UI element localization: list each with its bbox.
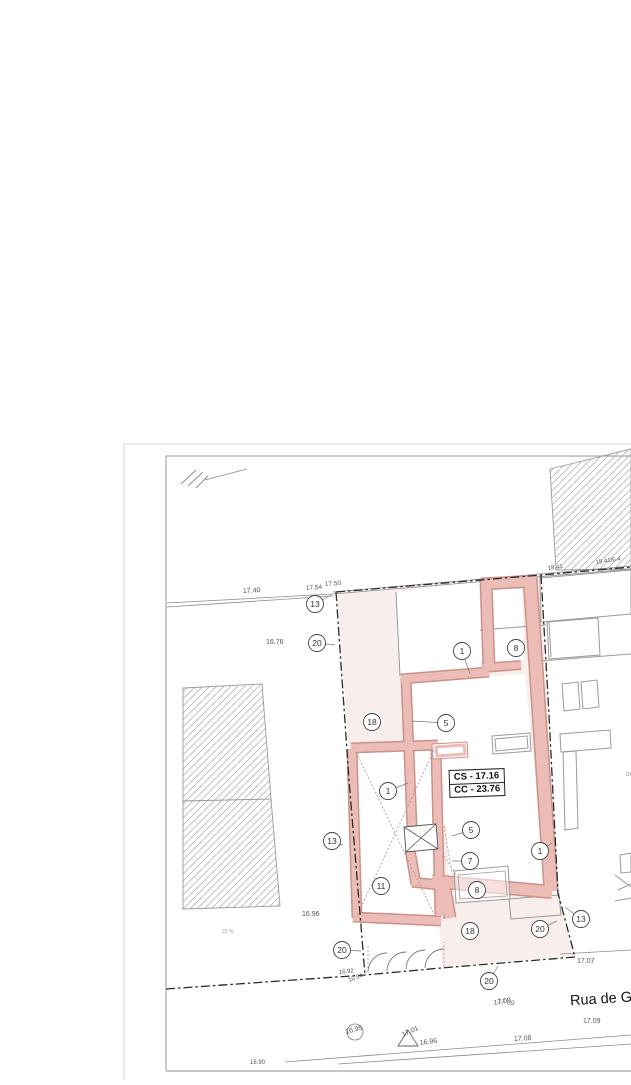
elevation-label: 17.08: [514, 1035, 532, 1043]
circled-marker-label: 1: [386, 786, 391, 796]
corner-sketch-mark: [181, 469, 247, 488]
elevation-label: 16.76: [266, 639, 284, 646]
elevation-label: 17.50: [325, 580, 342, 588]
crossed-box-element: [404, 824, 438, 852]
process-note-line2: PROC : 4/92: [586, 778, 631, 784]
circled-marker-label: 8: [514, 643, 519, 653]
circled-marker-label: 20: [484, 976, 494, 986]
circled-marker-label: 20: [337, 945, 347, 955]
circled-marker-label: 18: [367, 717, 377, 727]
road-lines: [285, 1035, 631, 1064]
wall-shelf-element: [432, 742, 468, 759]
elevation-label: 16.95: [345, 1025, 364, 1036]
elevation-label: 17.07: [577, 958, 595, 965]
circled-marker-label: 11: [377, 881, 386, 891]
circled-marker-label: 13: [327, 836, 337, 846]
circled-marker-label: 18: [465, 926, 475, 936]
site-plan-sheet: 17.4017.5417.5016.7618.4119.41/6.423 %16…: [0, 0, 631, 1080]
circled-marker-label: 1: [460, 646, 465, 656]
area-info-box: CS - 17.16 CC - 23.76: [449, 768, 506, 798]
process-note: DO MESMO REQ PROC : 4/92: [586, 772, 631, 784]
elevation-label: 16.96: [302, 911, 320, 918]
elevation-label: 16.92: [339, 968, 355, 976]
circled-marker-label: 7: [468, 856, 473, 866]
circled-marker-label: 1: [538, 846, 543, 856]
circled-marker-label: 13: [310, 599, 320, 609]
elevation-label: 18.41: [547, 564, 563, 572]
elevation-label: 17.54: [306, 584, 323, 592]
circled-marker-label: 5: [444, 718, 449, 728]
elevation-label: 16.90: [250, 1060, 266, 1066]
elevation-label: 16.96: [419, 1038, 437, 1047]
site-plan-drawing: 17.4017.5417.5016.7618.4119.41/6.423 %16…: [0, 0, 631, 1080]
cc-value: CC - 23.76: [450, 782, 504, 797]
circled-marker-label: 20: [535, 924, 545, 934]
elevation-label: 17.09: [583, 1018, 601, 1025]
hatched-building-left: [182, 684, 280, 909]
circled-marker-label: 20: [312, 638, 322, 648]
circled-marker-label: 5: [469, 825, 474, 835]
circled-marker-label: 13: [576, 914, 586, 924]
elevation-label: 17.40: [243, 587, 261, 595]
circled-marker-label: 8: [475, 885, 480, 895]
elevation-label: 23 %: [222, 929, 234, 935]
hatched-building-top-right: [550, 449, 631, 570]
